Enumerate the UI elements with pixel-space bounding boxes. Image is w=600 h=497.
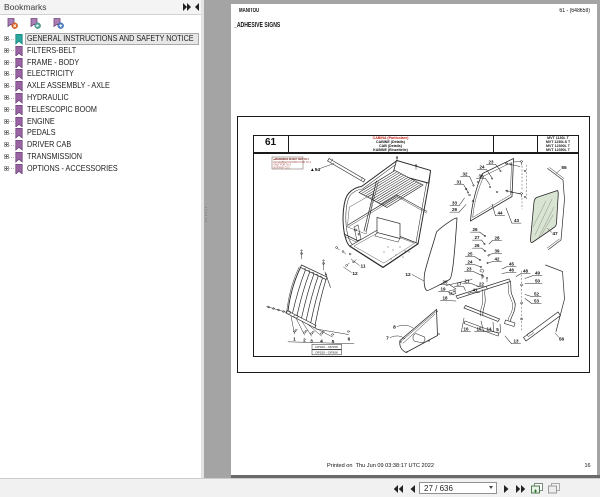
svg-text:46: 46: [509, 268, 515, 273]
svg-text:ONLY FOR TLI 5: ONLY FOR TLI 5: [274, 165, 292, 167]
svg-text:12: 12: [352, 271, 358, 277]
svg-text:DALLENBACH ROUND FOUR TLI 2: DALLENBACH ROUND FOUR TLI 2: [274, 161, 312, 164]
svg-text:26: 26: [472, 227, 478, 232]
svg-text:29: 29: [452, 207, 458, 212]
svg-text:39: 39: [494, 249, 500, 254]
svg-text:19: 19: [440, 287, 446, 292]
svg-text:42: 42: [494, 257, 500, 262]
svg-text:3: 3: [310, 338, 313, 344]
svg-text:41: 41: [472, 288, 478, 293]
svg-text:22: 22: [479, 282, 485, 287]
svg-text:52: 52: [534, 292, 540, 297]
svg-text:▲54: ▲54: [310, 167, 320, 173]
svg-text:14: 14: [486, 327, 492, 332]
svg-text:16: 16: [463, 327, 469, 332]
svg-text:11: 11: [360, 264, 365, 270]
svg-text:56: 56: [559, 337, 565, 343]
svg-text:26: 26: [474, 243, 480, 248]
svg-text:NUR FUR TLI 5: NUR FUR TLI 5: [274, 167, 291, 169]
svg-text:23: 23: [488, 160, 494, 165]
svg-text:1: 1: [293, 337, 296, 343]
svg-text:24: 24: [467, 260, 473, 265]
svg-text:49: 49: [535, 271, 541, 276]
svg-text:31: 31: [456, 180, 462, 185]
svg-text:27: 27: [474, 235, 480, 240]
svg-text:28: 28: [494, 236, 500, 241]
svg-text:12: 12: [405, 272, 411, 278]
svg-text:6: 6: [348, 337, 351, 343]
svg-text:43: 43: [514, 218, 520, 223]
svg-text:7: 7: [386, 336, 389, 342]
svg-text:47: 47: [552, 231, 558, 237]
svg-text:21: 21: [464, 279, 470, 284]
svg-text:17: 17: [456, 282, 462, 287]
svg-text:48: 48: [523, 269, 529, 274]
svg-text:38: 38: [478, 174, 484, 179]
svg-text:50: 50: [535, 279, 541, 284]
svg-text:23: 23: [466, 267, 472, 272]
svg-text:DP100 – DP15K: DP100 – DP15K: [315, 345, 339, 349]
svg-text:32: 32: [462, 172, 468, 177]
svg-text:DP150 – DP30K: DP150 – DP30K: [315, 351, 339, 355]
svg-text:20: 20: [442, 280, 448, 285]
svg-text:13: 13: [513, 339, 519, 344]
svg-text:33: 33: [452, 201, 458, 206]
svg-text:15: 15: [476, 327, 482, 332]
svg-text:25: 25: [467, 252, 473, 257]
svg-text:4: 4: [320, 338, 323, 344]
svg-text:53: 53: [534, 299, 540, 304]
svg-text:55: 55: [561, 165, 567, 171]
svg-text:45: 45: [509, 262, 515, 267]
svg-text:24: 24: [479, 165, 485, 170]
svg-text:■REMEMBER INSERT RED TLI 2: ■REMEMBER INSERT RED TLI 2: [274, 158, 310, 161]
svg-text:44: 44: [497, 211, 503, 216]
svg-text:8: 8: [393, 325, 396, 331]
svg-text:5: 5: [496, 327, 499, 332]
svg-text:18: 18: [442, 296, 448, 301]
